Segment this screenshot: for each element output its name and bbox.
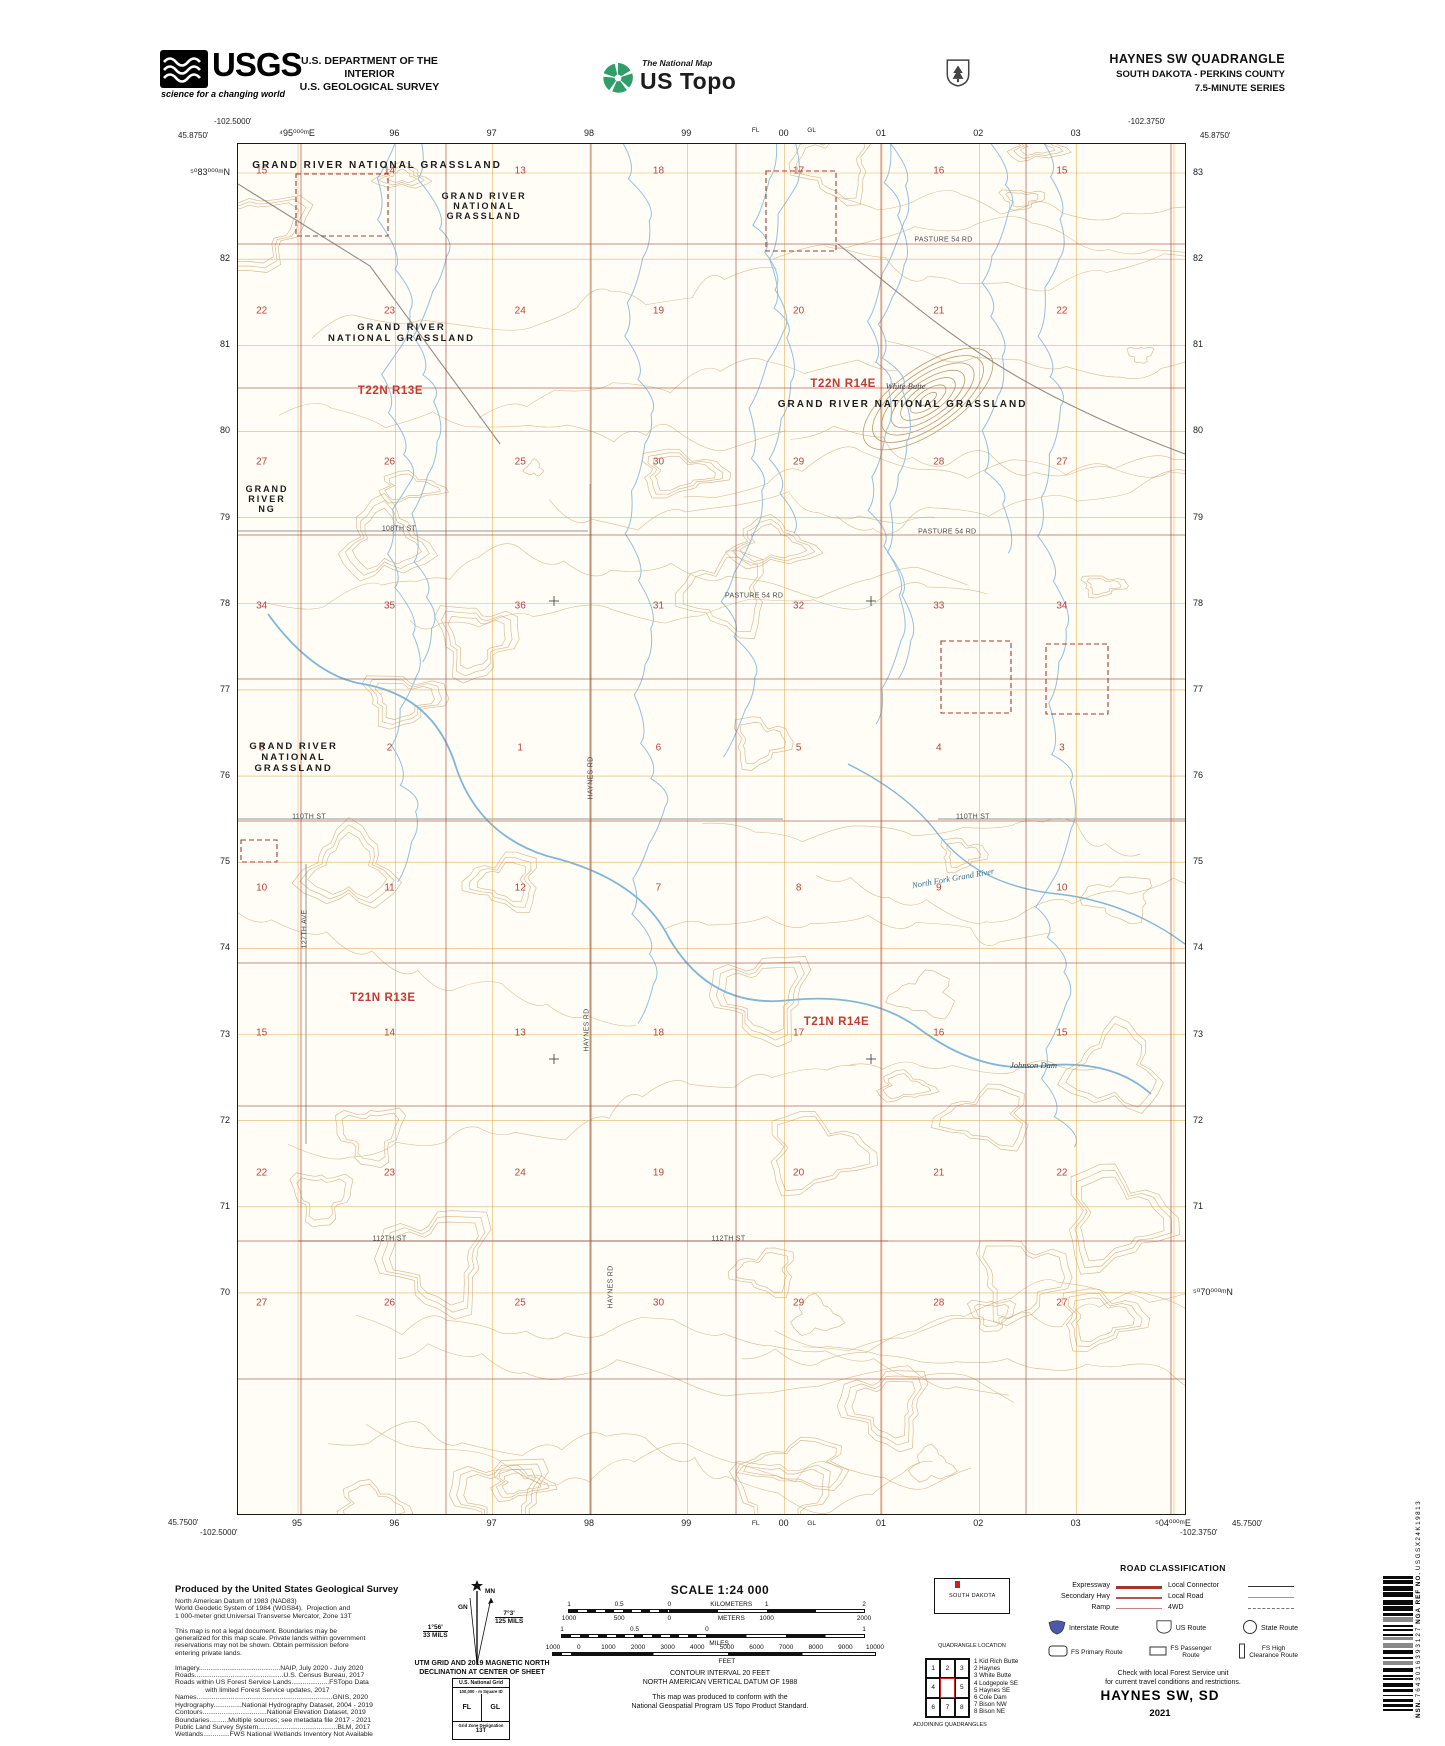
grid-label-left: 77 xyxy=(220,684,230,694)
usng-cell-gl: GL xyxy=(482,1694,510,1721)
section-number: 25 xyxy=(515,456,526,467)
section-number: 33 xyxy=(933,600,944,611)
scale-bar-tick-label: 1 xyxy=(765,1601,769,1608)
scale-bar-tick-label: 5000 xyxy=(720,1644,734,1651)
usng-square-cells: FL GL xyxy=(453,1694,509,1722)
credit-line: Contours................................… xyxy=(175,1709,485,1716)
scale-bar-tick-label: 6000 xyxy=(749,1644,763,1651)
grid-label-left: 70 xyxy=(220,1287,230,1297)
barcode-bar xyxy=(1383,1668,1413,1672)
section-number: 30 xyxy=(653,456,664,467)
grassland-label-line: NATIONAL GRASSLAND xyxy=(328,333,475,344)
road-label: 112TH ST xyxy=(373,1235,407,1242)
declination-caption: UTM GRID AND 2019 MAGNETIC NORTH DECLINA… xyxy=(392,1660,572,1677)
road-class-shield-label-line: FS Primary Route xyxy=(1071,1649,1123,1656)
section-number: 16 xyxy=(933,166,944,177)
adjoining-cell: 2 xyxy=(940,1659,954,1678)
grassland-label: GRANDRIVERNG xyxy=(246,484,289,514)
road-label: HAYNES RD xyxy=(608,1265,615,1308)
scale-bar-stripes-right xyxy=(669,1610,864,1612)
quad-title: HAYNES SW QUADRANGLE xyxy=(980,52,1285,66)
adjoining-cell: 5 xyxy=(955,1678,969,1697)
map-area: 1514131817161522232419202122272625302928… xyxy=(237,143,1186,1515)
road-class-label: Local Connector xyxy=(1168,1582,1242,1589)
corner-top-left-lon: -102.5000' xyxy=(214,117,252,126)
grid-label-right: 74 xyxy=(1193,942,1203,952)
scale-bar: 1000010002000300040005000600070008000900… xyxy=(552,1652,876,1656)
credit-line: Roads within US Forest Service Lands....… xyxy=(175,1679,485,1686)
section-number: 11 xyxy=(384,882,394,893)
barcode-bar xyxy=(1383,1629,1413,1631)
grassland-label-line: GRASSLAND xyxy=(249,763,338,774)
grid-label-top: 98 xyxy=(584,128,594,138)
barcode xyxy=(1383,1576,1413,1718)
state-locator-map: SOUTH DAKOTA xyxy=(934,1578,1010,1614)
barcode-bar xyxy=(1383,1683,1413,1687)
credit-line: Names...................................… xyxy=(175,1694,485,1701)
grid-label-top: 99 xyxy=(681,128,691,138)
section-number: 7 xyxy=(656,882,662,893)
section-number: 21 xyxy=(933,1167,944,1178)
interstate-shield-icon xyxy=(1048,1619,1066,1637)
section-number: 17 xyxy=(793,166,804,177)
grid-label-left: 81 xyxy=(220,339,230,349)
grid-label-left: 75 xyxy=(220,856,230,866)
barcode-bar xyxy=(1383,1606,1413,1611)
road-line-sample xyxy=(1116,1597,1162,1599)
road-class-label: 4WD xyxy=(1168,1604,1242,1611)
credit-line: Boundaries..........Multiple sources; se… xyxy=(175,1717,485,1724)
department-heading: U.S. DEPARTMENT OF THE INTERIOR U.S. GEO… xyxy=(282,55,457,94)
section-number: 34 xyxy=(1056,600,1067,611)
usng-zone-value: 13T xyxy=(453,1728,509,1734)
road-label: 110TH ST xyxy=(956,813,990,820)
section-number: 36 xyxy=(515,600,526,611)
grid-label-right: 71 xyxy=(1193,1201,1203,1211)
ustopo-pinwheel-icon xyxy=(600,60,636,96)
scale-bar-unit-label: FEET xyxy=(719,1658,736,1665)
square-id-gl-top: GL xyxy=(807,127,816,134)
adjoining-quads-caption: ADJOINING QUADRANGLES xyxy=(895,1722,1005,1728)
section-number: 18 xyxy=(653,166,664,177)
grid-label-right: 72 xyxy=(1193,1115,1203,1125)
grid-label-left: 73 xyxy=(220,1029,230,1039)
adjoining-cell: 7 xyxy=(940,1698,954,1717)
grid-label-left: 76 xyxy=(220,770,230,780)
grid-label-right: 81 xyxy=(1193,339,1203,349)
township-range-label: T21N R14E xyxy=(804,1016,869,1028)
grid-label-left: 74 xyxy=(220,942,230,952)
scale-bar-tick-label: 10000 xyxy=(866,1644,884,1651)
map-labels-layer: 1514131817161522232419202122272625302928… xyxy=(238,144,1185,1514)
usgs-topo-sheet: USGS science for a changing world U.S. D… xyxy=(0,0,1445,1746)
scale-bar: 10.501MILES xyxy=(561,1634,865,1638)
section-number: 22 xyxy=(1056,306,1067,317)
section-number: 19 xyxy=(653,306,664,317)
square-id-fl-bottom: FL xyxy=(752,1520,760,1527)
scale-bar-tick-label: 8000 xyxy=(809,1644,823,1651)
road-class-shield-row: Interstate RouteUS RouteState Route xyxy=(1048,1619,1298,1637)
road-class-shield-item: Interstate Route xyxy=(1048,1619,1119,1637)
grid-label-top: 01 xyxy=(876,128,886,138)
road-class-row: Secondary HwyLocal Road xyxy=(1048,1591,1298,1602)
road-label: PASTURE 54 RD xyxy=(914,236,972,243)
road-class-shield-label: Interstate Route xyxy=(1069,1625,1119,1632)
grid-north-label: GN xyxy=(458,1604,468,1611)
road-class-shield-label-line: Interstate Route xyxy=(1069,1625,1119,1632)
nsn-label: NSN. xyxy=(1415,1699,1422,1718)
road-class-label: Ramp xyxy=(1048,1604,1110,1611)
grid-label-right: 78 xyxy=(1193,598,1203,608)
section-number: 20 xyxy=(793,306,804,317)
section-number: 14 xyxy=(384,1028,395,1039)
barcode-bar xyxy=(1383,1699,1413,1702)
road-class-label: Expressway xyxy=(1048,1582,1110,1589)
road-label: HAYNES RD xyxy=(584,1009,591,1052)
scale-bar-unit-label: METERS xyxy=(718,1615,745,1622)
national-map-logo: The National Map US Topo xyxy=(600,56,800,104)
adjoining-cell: 1 xyxy=(926,1659,940,1678)
dept-line2: U.S. GEOLOGICAL SURVEY xyxy=(282,81,457,94)
barcode-bar xyxy=(1383,1643,1413,1648)
scale-bar-tick-label: 4000 xyxy=(690,1644,704,1651)
grassland-label: GRAND RIVER NATIONAL GRASSLAND xyxy=(252,160,502,171)
grassland-label: GRAND RIVERNATIONALGRASSLAND xyxy=(442,191,527,221)
section-number: 29 xyxy=(793,1298,804,1309)
grid-label-left: 72 xyxy=(220,1115,230,1125)
scale-bar-stripes-left xyxy=(553,1653,579,1655)
road-class-line-rows: ExpresswayLocal ConnectorSecondary HwyLo… xyxy=(1048,1580,1298,1613)
usgs-tagline: science for a changing world xyxy=(161,89,285,99)
section-number: 19 xyxy=(653,1167,664,1178)
section-number: 22 xyxy=(256,306,267,317)
square-id-gl-bottom: GL xyxy=(807,1520,816,1527)
quad-series: 7.5-MINUTE SERIES xyxy=(980,83,1285,94)
grid-label-left: 79 xyxy=(220,512,230,522)
scale-bar-stripes-right xyxy=(707,1635,864,1637)
grid-label-right: 77 xyxy=(1193,684,1203,694)
road-label: 112TH ST xyxy=(712,1235,746,1242)
grassland-label-line: NATIONAL xyxy=(249,752,338,763)
scale-bar-stripes-left xyxy=(562,1635,707,1637)
grid-label-bottom: 96 xyxy=(389,1518,399,1528)
road-class-row: ExpresswayLocal Connector xyxy=(1048,1580,1298,1591)
magnetic-north-label: MN xyxy=(485,1588,495,1595)
road-label: PASTURE 54 RD xyxy=(918,528,976,535)
grassland-label-line: GRAND RIVER NATIONAL GRASSLAND xyxy=(252,160,502,171)
grassland-label-line: RIVER xyxy=(246,494,289,504)
section-number: 17 xyxy=(793,1028,804,1039)
section-number: 28 xyxy=(933,456,944,467)
section-number: 6 xyxy=(656,743,662,754)
section-number: 22 xyxy=(256,1167,267,1178)
grid-label-bottom: 99 xyxy=(681,1518,691,1528)
section-number: 27 xyxy=(1056,1298,1067,1309)
scale-bar-unit-label: 0 xyxy=(667,1615,671,1622)
road-line-sample xyxy=(1248,1597,1294,1598)
road-classification-legend: ROAD CLASSIFICATION ExpresswayLocal Conn… xyxy=(1048,1563,1298,1687)
dept-line1: U.S. DEPARTMENT OF THE INTERIOR xyxy=(282,55,457,81)
quad-location-marker xyxy=(955,1581,960,1588)
national-map-label: The National Map xyxy=(642,58,712,68)
section-number: 20 xyxy=(793,1167,804,1178)
road-label: 110TH ST xyxy=(292,813,326,820)
quadrangle-location-caption: QUADRANGLE LOCATION xyxy=(912,1643,1032,1649)
grid-label-bottom: 03 xyxy=(1071,1518,1081,1528)
road-class-shield-item: FS Primary Route xyxy=(1048,1645,1123,1659)
corner-top-right-lat: 45.8750' xyxy=(1200,131,1230,140)
road-class-shield-label: FS Primary Route xyxy=(1071,1649,1123,1656)
scale-bar-tick-label: 2000 xyxy=(631,1644,645,1651)
section-number: 3 xyxy=(1059,743,1065,754)
quad-subtitle: SOUTH DAKOTA - PERKINS COUNTY xyxy=(980,69,1285,80)
square-id-fl-top: FL xyxy=(752,127,760,134)
adjoining-cell-current xyxy=(940,1678,954,1697)
barcode-bar xyxy=(1383,1617,1413,1622)
grid-label-left: 82 xyxy=(220,253,230,263)
barcode-bar xyxy=(1383,1600,1413,1605)
scale-bar-tick-label: 0 xyxy=(705,1626,709,1633)
feature-label: North Fork Grand River xyxy=(911,866,995,890)
section-number: 10 xyxy=(256,882,267,893)
section-number: 30 xyxy=(653,1298,664,1309)
grassland-label-line: GRASSLAND xyxy=(442,211,527,221)
section-number: 8 xyxy=(796,882,802,893)
grid-label-top: 97 xyxy=(487,128,497,138)
section-number: 22 xyxy=(1056,1167,1067,1178)
grid-label-right: 79 xyxy=(1193,512,1203,522)
grassland-label: GRAND RIVERNATIONAL GRASSLAND xyxy=(328,322,475,344)
contour-interval-note: CONTOUR INTERVAL 20 FEET NORTH AMERICAN … xyxy=(580,1669,860,1687)
road-class-shield-item: US Route xyxy=(1155,1619,1206,1637)
section-number: 5 xyxy=(796,743,802,754)
section-number: 16 xyxy=(933,1028,944,1039)
grid-label-bottom: 98 xyxy=(584,1518,594,1528)
scale-bar-tick-label: 0.5 xyxy=(630,1626,639,1633)
barcode-bar xyxy=(1383,1657,1413,1659)
road-class-shield-label: FS PassengerRoute xyxy=(1170,1645,1211,1659)
barcode-bar xyxy=(1383,1650,1413,1654)
road-class-shield-label: State Route xyxy=(1261,1625,1298,1632)
credit-line: Hydrography...............National Hydro… xyxy=(175,1702,485,1709)
section-number: 21 xyxy=(933,306,944,317)
product-standard-note: This map was produced to conform with th… xyxy=(570,1693,870,1711)
declination-diagram: MN GN 7°3' 125 MILS 1°56' 33 MILS xyxy=(425,1578,535,1670)
road-label: 108TH ST xyxy=(382,525,416,532)
state-shield-icon xyxy=(1242,1619,1258,1637)
usgs-wave-icon xyxy=(160,50,208,88)
section-number: 25 xyxy=(515,1298,526,1309)
corner-top-left-lat: 45.8750' xyxy=(178,131,208,140)
grassland-label-line: GRAND RIVER xyxy=(328,322,475,333)
section-number: 18 xyxy=(653,1028,664,1039)
barcode-bar xyxy=(1383,1613,1413,1615)
scale-bar-stripes-left xyxy=(569,1610,669,1612)
scale-bar-unit-label: 1000 xyxy=(562,1615,576,1622)
grid-label-bottom: 02 xyxy=(973,1518,983,1528)
road-class-shield-label-line: State Route xyxy=(1261,1625,1298,1632)
road-label: 127TH AVE xyxy=(302,910,309,949)
nsn-number: 7643016393127 xyxy=(1415,1626,1422,1698)
credit-line: Wetlands..............FWS National Wetla… xyxy=(175,1731,485,1738)
barcode-bar xyxy=(1383,1625,1413,1627)
gn-declination-value: 1°56' 33 MILS xyxy=(423,1624,448,1639)
barcode-text: NSN. 7643016393127 NGA REF NO. USGSX24K1… xyxy=(1415,1576,1441,1718)
section-number: 12 xyxy=(515,882,526,893)
road-line-sample xyxy=(1116,1608,1162,1610)
section-number: 15 xyxy=(1056,1028,1067,1039)
forest-service-note: Check with local Forest Service unit for… xyxy=(1048,1670,1298,1687)
road-class-shield-label-line: US Route xyxy=(1176,1625,1206,1632)
corner-bottom-left-lat: 45.7500' xyxy=(168,1518,198,1527)
barcode-bar xyxy=(1383,1704,1413,1707)
adjoining-cell: 3 xyxy=(955,1659,969,1678)
section-number: 27 xyxy=(256,1298,267,1309)
section-number: 2 xyxy=(387,743,393,754)
section-number: 32 xyxy=(793,600,804,611)
road-class-shield-label: US Route xyxy=(1176,1625,1206,1632)
scale-bar-tick-label: 0 xyxy=(577,1644,581,1651)
barcode-bar xyxy=(1383,1661,1413,1665)
grid-label-top: 96 xyxy=(389,128,399,138)
scale-bar-unit-label: 2000 xyxy=(857,1615,871,1622)
section-number: 23 xyxy=(384,1167,395,1178)
barcode-bar xyxy=(1383,1586,1413,1591)
corner-bottom-right-lat: 45.7500' xyxy=(1232,1519,1262,1528)
adjoining-cell: 8 xyxy=(955,1698,969,1717)
grassland-label-line: NATIONAL xyxy=(442,201,527,211)
nga-ref-label: NGA REF NO. xyxy=(1415,1572,1422,1624)
barcode-bar xyxy=(1383,1689,1413,1693)
section-number: 13 xyxy=(515,166,526,177)
adjoining-cell: 4 xyxy=(926,1678,940,1697)
quadrangle-heading: HAYNES SW QUADRANGLE SOUTH DAKOTA - PERK… xyxy=(980,52,1285,94)
section-number: 13 xyxy=(515,1028,526,1039)
road-label: HAYNES RD xyxy=(588,757,595,800)
scale-bar-unit-label: 500 xyxy=(614,1615,625,1622)
grid-label-top: 02 xyxy=(973,128,983,138)
road-class-shield-label: FS HighClearance Route xyxy=(1249,1645,1298,1659)
barcode-bar xyxy=(1383,1637,1413,1640)
corner-top-right-lon: -102.3750' xyxy=(1128,117,1166,126)
scale-bar-tick-label: 1000 xyxy=(546,1644,560,1651)
barcode-bar xyxy=(1383,1576,1413,1579)
scale-bar-tick-label: 7000 xyxy=(779,1644,793,1651)
usng-title: U.S. National Grid xyxy=(453,1679,509,1688)
grassland-label: GRAND RIVER NATIONAL GRASSLAND xyxy=(778,399,1028,410)
grassland-label-line: GRAND xyxy=(246,484,289,494)
section-number: 29 xyxy=(793,456,804,467)
grid-label-right: 80 xyxy=(1193,425,1203,435)
road-class-shield-label-line: FS Passenger xyxy=(1170,1645,1211,1652)
fs-passenger-shield-icon xyxy=(1149,1646,1167,1658)
scale-bar-tick-label: 0.5 xyxy=(615,1601,624,1608)
grid-label-left: ⁵⁰83⁰⁰⁰ᵐN xyxy=(190,167,230,178)
adjoining-quads-grid: 12345678 xyxy=(925,1658,970,1718)
grid-label-right: 73 xyxy=(1193,1029,1203,1039)
barcode-bar xyxy=(1383,1695,1413,1697)
road-line-sample xyxy=(1248,1586,1294,1587)
adjoining-cell: 6 xyxy=(926,1698,940,1717)
grid-label-left: 78 xyxy=(220,598,230,608)
road-classification-title: ROAD CLASSIFICATION xyxy=(1048,1563,1298,1573)
scale-bar-tick-label: 9000 xyxy=(838,1644,852,1651)
township-range-label: T21N R13E xyxy=(350,992,415,1004)
scale-bar-tick-label: 1 xyxy=(862,1626,866,1633)
section-number: 24 xyxy=(515,306,526,317)
road-class-row: Ramp4WD xyxy=(1048,1602,1298,1613)
grassland-label-line: GRAND RIVER xyxy=(249,741,338,752)
scale-bar-tick-label: 2 xyxy=(862,1601,866,1608)
scale-bar-tick-label: 1 xyxy=(567,1601,571,1608)
barcode-bar xyxy=(1383,1580,1413,1583)
road-line-sample xyxy=(1248,1608,1294,1609)
grid-label-bottom: ⁵04⁰⁰⁰ᵐE xyxy=(1155,1518,1191,1529)
feature-label: Johnson Dam xyxy=(1010,1060,1057,1070)
section-number: 1 xyxy=(517,743,523,754)
sheet-year: 2021 xyxy=(1040,1708,1280,1719)
grid-label-right: 83 xyxy=(1193,167,1203,177)
grid-label-left: 71 xyxy=(220,1201,230,1211)
grid-label-right: ⁵⁰70⁰⁰⁰ᵐN xyxy=(1193,1287,1233,1298)
ustopo-label: US Topo xyxy=(640,68,736,95)
barcode-bar xyxy=(1383,1592,1413,1597)
township-range-label: T22N R13E xyxy=(358,385,423,397)
section-number: 35 xyxy=(384,600,395,611)
fs-primary-shield-icon xyxy=(1048,1645,1068,1659)
section-number: 26 xyxy=(384,456,395,467)
grid-label-left: 80 xyxy=(220,425,230,435)
road-class-label: Secondary Hwy xyxy=(1048,1593,1110,1600)
scale-bar-tick-label: 1000 xyxy=(601,1644,615,1651)
sheet-title: HAYNES SW, SD xyxy=(1040,1688,1280,1703)
forest-service-shield-icon xyxy=(945,58,971,88)
corner-bottom-right-lon: -102.3750' xyxy=(1180,1528,1218,1537)
grid-label-right: 82 xyxy=(1193,253,1203,263)
barcode-bar xyxy=(1383,1675,1413,1678)
section-number: 26 xyxy=(384,1298,395,1309)
road-class-shield-label-line: Clearance Route xyxy=(1249,1652,1298,1659)
credit-line: with limited Forest Service updates, 201… xyxy=(175,1687,485,1694)
grid-label-top: 00 xyxy=(779,128,789,138)
scale-title: SCALE 1:24 000 xyxy=(560,1583,880,1597)
road-class-fs-row: FS Primary RouteFS PassengerRouteFS High… xyxy=(1048,1643,1298,1661)
road-class-shield-item: FS HighClearance Route xyxy=(1238,1643,1298,1661)
scale-bar: 10.50KILOMETERS1210005000METERS10002000 xyxy=(568,1609,865,1613)
grassland-label-line: NG xyxy=(246,504,289,514)
corner-bottom-left-lon: -102.5000' xyxy=(200,1528,238,1537)
scale-bar-tick-label: 0 xyxy=(667,1601,671,1608)
grid-label-bottom: 95 xyxy=(292,1518,302,1528)
mn-declination-value: 7°3' 125 MILS xyxy=(495,1610,523,1625)
scale-bar-stripes-right xyxy=(579,1653,875,1655)
grassland-label-line: GRAND RIVER xyxy=(442,191,527,201)
grassland-label: GRAND RIVERNATIONALGRASSLAND xyxy=(249,741,338,774)
section-number: 34 xyxy=(256,600,267,611)
section-number: 27 xyxy=(256,456,267,467)
scale-bar-unit-label: 1000 xyxy=(759,1615,773,1622)
road-label: PASTURE 54 RD xyxy=(725,593,783,600)
barcode-bar xyxy=(1383,1709,1413,1711)
grid-label-right: 75 xyxy=(1193,856,1203,866)
section-number: 15 xyxy=(1056,166,1067,177)
road-class-shield-item: FS PassengerRoute xyxy=(1149,1645,1211,1659)
barcode-bar xyxy=(1383,1634,1413,1636)
section-number: 4 xyxy=(936,743,942,754)
credit-line: Public Land Survey System...............… xyxy=(175,1724,485,1731)
township-range-label: T22N R14E xyxy=(810,378,875,390)
grid-label-top: ⁴95⁰⁰⁰ᵐE xyxy=(279,128,315,139)
